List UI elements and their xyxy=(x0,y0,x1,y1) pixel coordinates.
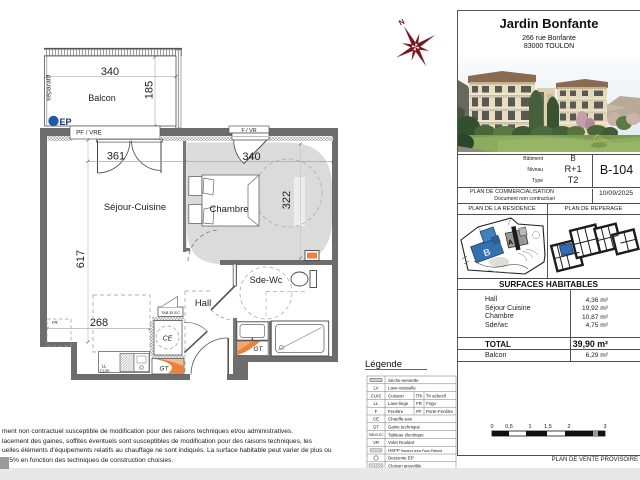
svg-text:CE: CE xyxy=(373,417,379,422)
svg-text:GT: GT xyxy=(253,346,263,353)
svg-text:Cuisson: Cuisson xyxy=(388,393,404,398)
svg-text:Légende: Légende xyxy=(365,359,402,370)
svg-text:Chauffe-eau: Chauffe-eau xyxy=(388,417,413,422)
svg-text:GT: GT xyxy=(159,366,169,373)
svg-text:F: F xyxy=(375,409,378,414)
svg-text:Hall: Hall xyxy=(195,298,211,309)
svg-text:617: 617 xyxy=(75,250,87,268)
svg-text:Chambre: Chambre xyxy=(209,204,248,215)
svg-text:EP: EP xyxy=(60,117,72,127)
svg-text:TAB.ELEC: TAB.ELEC xyxy=(161,310,180,315)
svg-text:Lave-linge: Lave-linge xyxy=(388,401,409,406)
svg-text:LL: LL xyxy=(374,401,379,406)
svg-text:Sèche-serviette: Sèche-serviette xyxy=(388,378,419,383)
svg-text:2: 2 xyxy=(567,424,570,430)
svg-text:Lave-vaisselle: Lave-vaisselle xyxy=(388,386,416,391)
svg-text:340: 340 xyxy=(242,151,260,163)
svg-text:185: 185 xyxy=(144,81,156,99)
svg-text:PF / VRE: PF / VRE xyxy=(76,130,102,137)
svg-text:PF: PF xyxy=(416,409,422,414)
svg-text:N: N xyxy=(397,17,406,28)
svg-text:.CUIS: .CUIS xyxy=(98,369,109,374)
svg-text:Tri sélectif: Tri sélectif xyxy=(426,393,447,398)
svg-text:Sde-Wc: Sde-Wc xyxy=(250,275,283,285)
svg-text:FR: FR xyxy=(52,320,58,325)
svg-text:268: 268 xyxy=(90,317,108,329)
svg-text:Séjour-Cuisine: Séjour-Cuisine xyxy=(104,202,166,213)
svg-text:séparatif: séparatif xyxy=(46,75,53,101)
svg-text:1,5: 1,5 xyxy=(544,424,552,430)
svg-text:CUIS: CUIS xyxy=(371,393,382,398)
svg-text:340: 340 xyxy=(101,66,119,78)
svg-text:FR: FR xyxy=(416,401,422,406)
svg-text:CE: CE xyxy=(163,336,173,343)
svg-text:LV: LV xyxy=(373,386,378,391)
svg-text:Balcon: Balcon xyxy=(88,93,116,103)
svg-text:TRI: TRI xyxy=(415,393,422,398)
svg-text:322: 322 xyxy=(281,191,293,209)
svg-text:3: 3 xyxy=(603,424,606,430)
svg-text:361: 361 xyxy=(107,151,125,163)
svg-text:Fenêtre: Fenêtre xyxy=(388,409,404,414)
svg-text:Frigo: Frigo xyxy=(426,401,437,406)
svg-text:Porte-Fenêtre: Porte-Fenêtre xyxy=(426,409,454,414)
